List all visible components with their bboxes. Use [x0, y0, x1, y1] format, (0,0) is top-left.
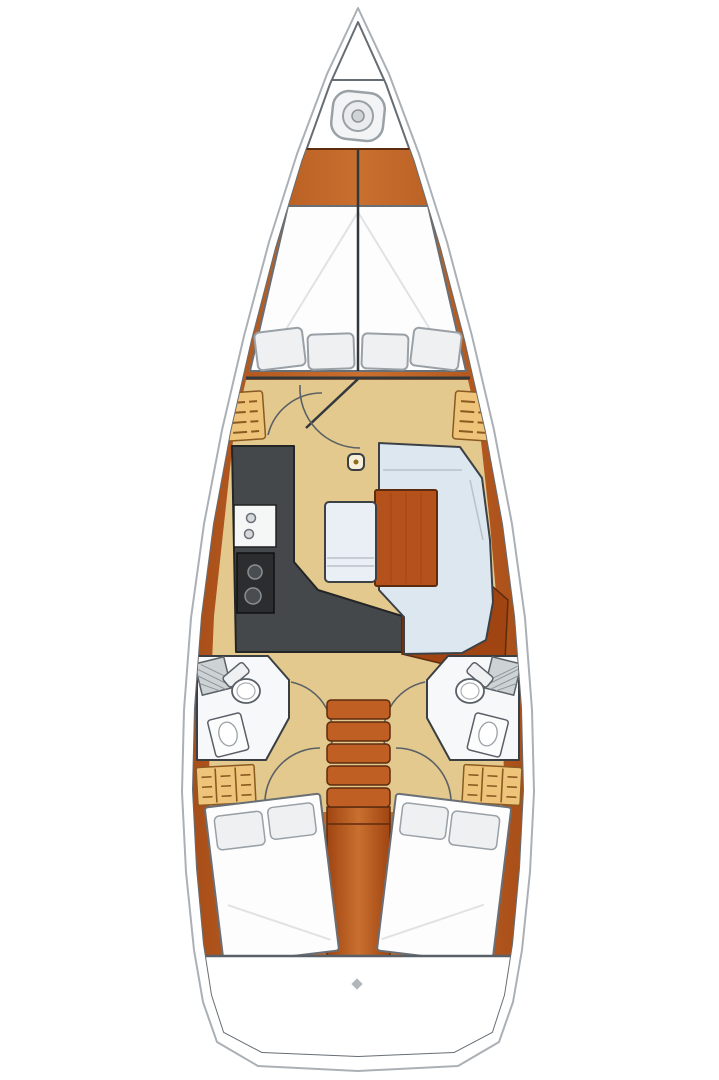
head-port [195, 656, 289, 760]
vberth-pillow-3 [361, 333, 408, 370]
mast-post [348, 454, 364, 470]
aft-locker-starboard [462, 765, 522, 806]
vberth-pillow-1 [254, 327, 306, 371]
step-1 [327, 700, 390, 719]
stove-burner-2 [245, 588, 261, 604]
aft-bed-port [205, 794, 339, 965]
step-3 [327, 744, 390, 763]
step-5 [327, 788, 390, 807]
galley-faucet-1 [247, 514, 256, 523]
head-starboard [427, 656, 521, 760]
galley-faucet-2 [245, 530, 254, 539]
step-2 [327, 722, 390, 741]
salon-bench [325, 502, 376, 582]
salon-table [375, 490, 437, 586]
aft-bed-starboard [377, 794, 511, 965]
floor-plan-canvas [0, 0, 719, 1080]
galley-sink [234, 505, 276, 547]
vberth-pillow-2 [307, 333, 354, 370]
stove-burner-1 [248, 565, 262, 579]
boat-floor-plan [0, 0, 719, 1080]
vberth-pillow-4 [410, 327, 462, 371]
step-4 [327, 766, 390, 785]
windlass-icon [330, 89, 387, 142]
aft-locker-port [196, 765, 256, 806]
